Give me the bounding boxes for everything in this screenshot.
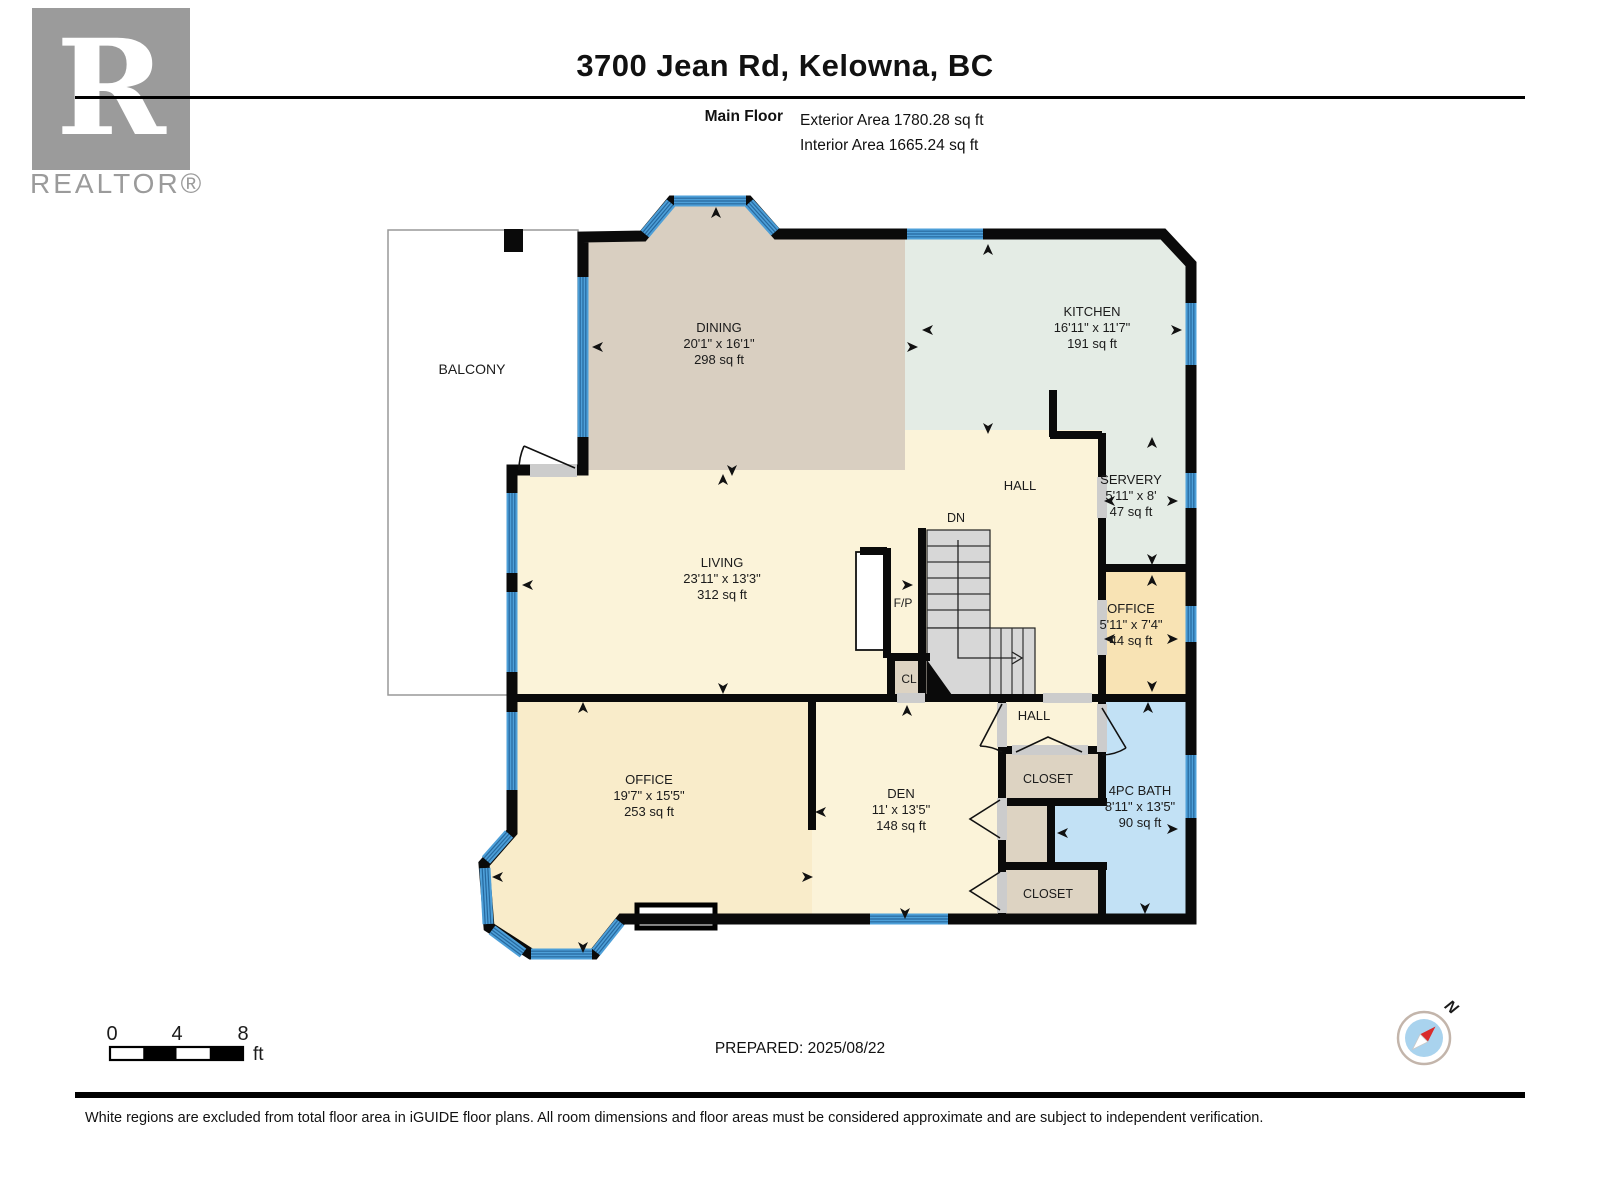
window-icon bbox=[507, 592, 518, 672]
kitchen-fill bbox=[905, 234, 1191, 435]
closet-mid-fill bbox=[1002, 806, 1051, 864]
room-label-balcony: BALCONY bbox=[439, 361, 507, 377]
window-icon bbox=[1186, 473, 1197, 508]
room-label-hall_lower: HALL bbox=[1018, 708, 1051, 723]
window-icon bbox=[907, 229, 983, 240]
window-icon bbox=[1186, 606, 1197, 642]
fireplace-box bbox=[856, 552, 884, 650]
room-label-closet_lower: CLOSET bbox=[1023, 887, 1073, 901]
closet-lower-doorway bbox=[997, 872, 1007, 913]
window-icon bbox=[507, 712, 518, 790]
prepared-date: PREPARED: 2025/08/22 bbox=[0, 1040, 1600, 1058]
room-label-fp: F/P bbox=[894, 596, 913, 610]
room-label-cl: CL bbox=[901, 672, 917, 686]
bath-doorway bbox=[1097, 704, 1107, 752]
window-icon bbox=[1186, 755, 1197, 818]
window-icon bbox=[578, 277, 589, 437]
window-icon bbox=[674, 196, 746, 207]
window-icon bbox=[1186, 303, 1197, 365]
floor-plan: BALCONYDINING20'1" x 16'1"298 sq ftKITCH… bbox=[0, 0, 1600, 1200]
window-icon bbox=[870, 914, 948, 925]
hall-doorway bbox=[1043, 693, 1092, 703]
room-label-closet_upper: CLOSET bbox=[1023, 772, 1073, 786]
cl-door bbox=[897, 693, 925, 703]
room-label-dn: DN bbox=[947, 511, 965, 525]
disclaimer-text: White regions are excluded from total fl… bbox=[85, 1110, 1525, 1126]
balcony-wall-stub bbox=[504, 229, 523, 252]
room-label-hall_upper: HALL bbox=[1004, 478, 1037, 493]
footer-rule bbox=[75, 1092, 1525, 1098]
closet-mid-doorway bbox=[997, 798, 1007, 840]
compass-north-label: N bbox=[1441, 997, 1461, 1018]
window-icon bbox=[507, 493, 518, 573]
